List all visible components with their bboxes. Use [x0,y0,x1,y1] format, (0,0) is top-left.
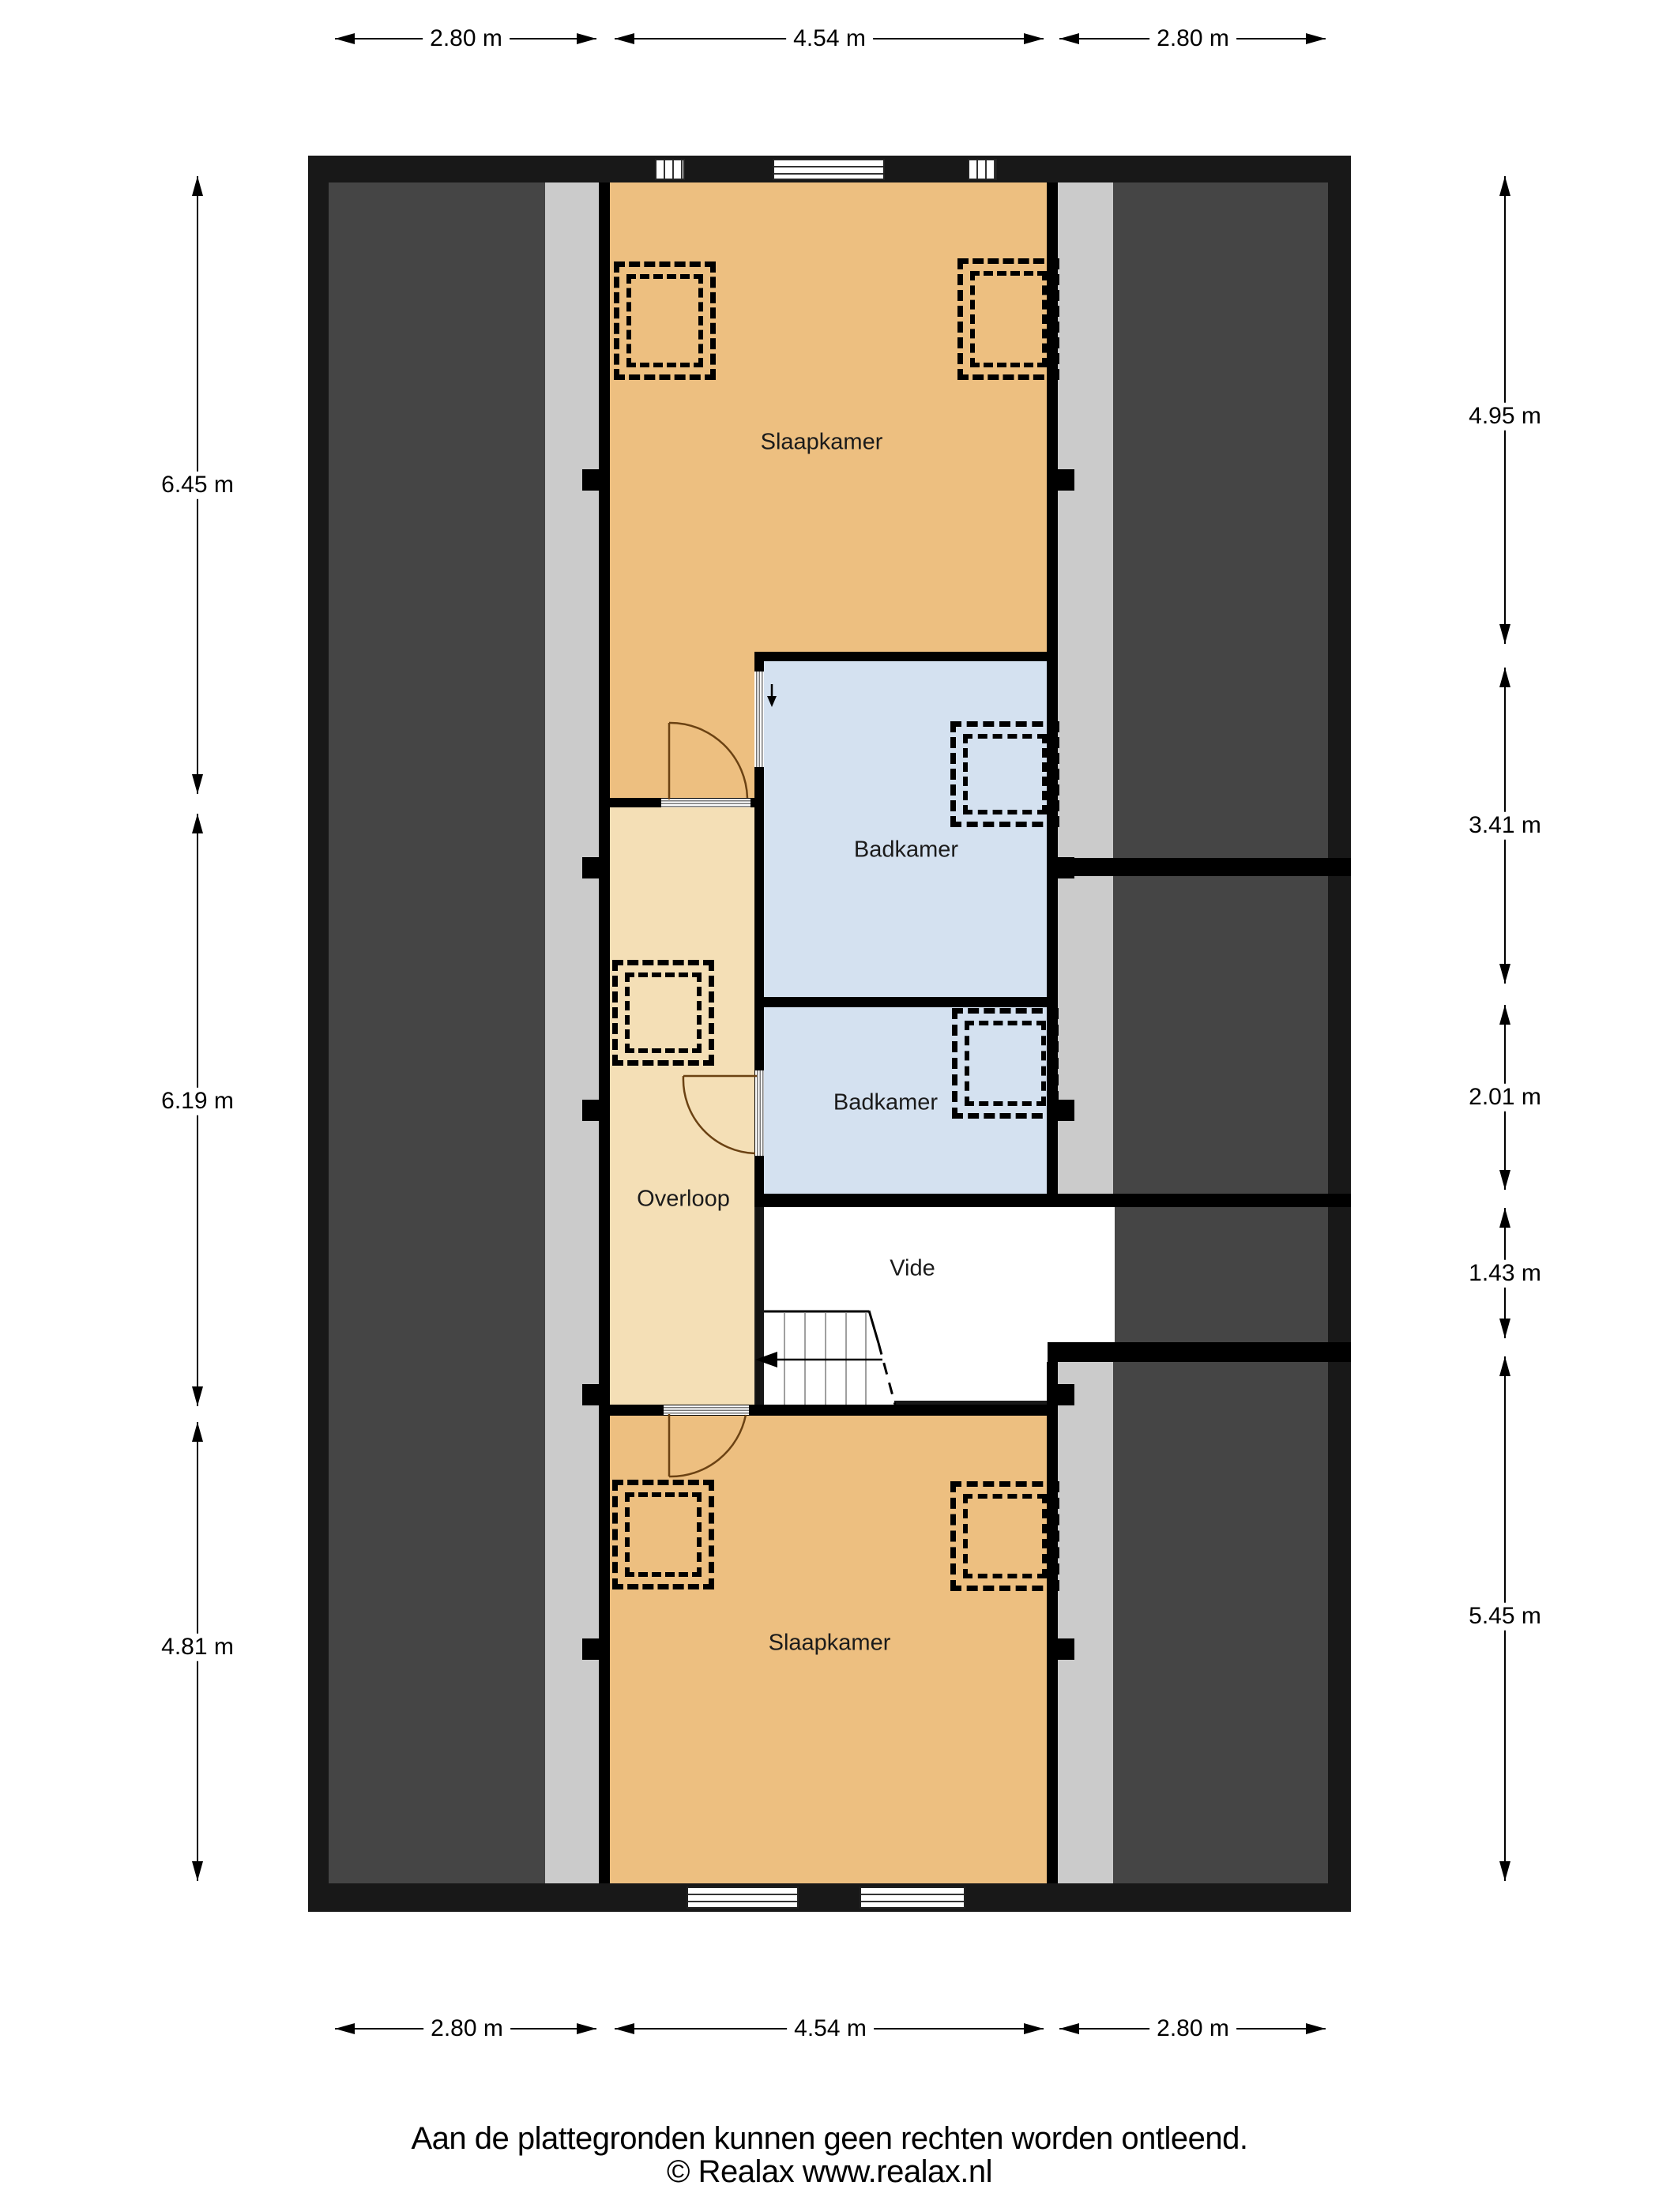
footer-copyright: © Realax www.realax.nl [667,2154,992,2190]
room-label-overloop: Overloop [637,1186,730,1212]
room-label-vide: Vide [890,1255,935,1281]
dimension-label-right-2: 3.41 m [1461,812,1548,840]
door-swing [669,723,757,1477]
room-label-badkamer-bottom: Badkamer [833,1089,938,1115]
dimension-lines [197,39,1505,2029]
dimension-label-right-4: 1.43 m [1461,1260,1548,1288]
dimension-label-top-2: 4.54 m [786,25,873,53]
room-label-badkamer-top: Badkamer [854,837,958,863]
floor-plan: Slaapkamer Badkamer Badkamer Overloop Vi… [0,0,1659,2212]
dimension-label-bottom-3: 2.80 m [1149,2015,1236,2043]
footer-disclaimer: Aan de plattegronden kunnen geen rechten… [411,2120,1247,2157]
door-direction-arrow-icon [767,684,777,707]
room-label-slaapkamer-top: Slaapkamer [761,429,883,455]
dimension-label-left-3: 4.81 m [154,1634,241,1661]
dimension-label-left-2: 6.19 m [154,1088,241,1115]
dimension-label-right-1: 4.95 m [1461,403,1548,431]
stairs [764,1311,895,1405]
dimension-label-right-5: 5.45 m [1461,1603,1548,1631]
dimension-label-bottom-1: 2.80 m [423,2015,510,2043]
room-label-slaapkamer-bottom: Slaapkamer [769,1630,891,1656]
dimension-label-top-1: 2.80 m [423,25,510,53]
dimension-label-top-3: 2.80 m [1149,25,1236,53]
dimension-label-bottom-2: 4.54 m [787,2015,874,2043]
plan-linework [0,0,1659,2212]
dimension-label-left-1: 6.45 m [154,472,241,499]
dimension-label-right-3: 2.01 m [1461,1084,1548,1112]
